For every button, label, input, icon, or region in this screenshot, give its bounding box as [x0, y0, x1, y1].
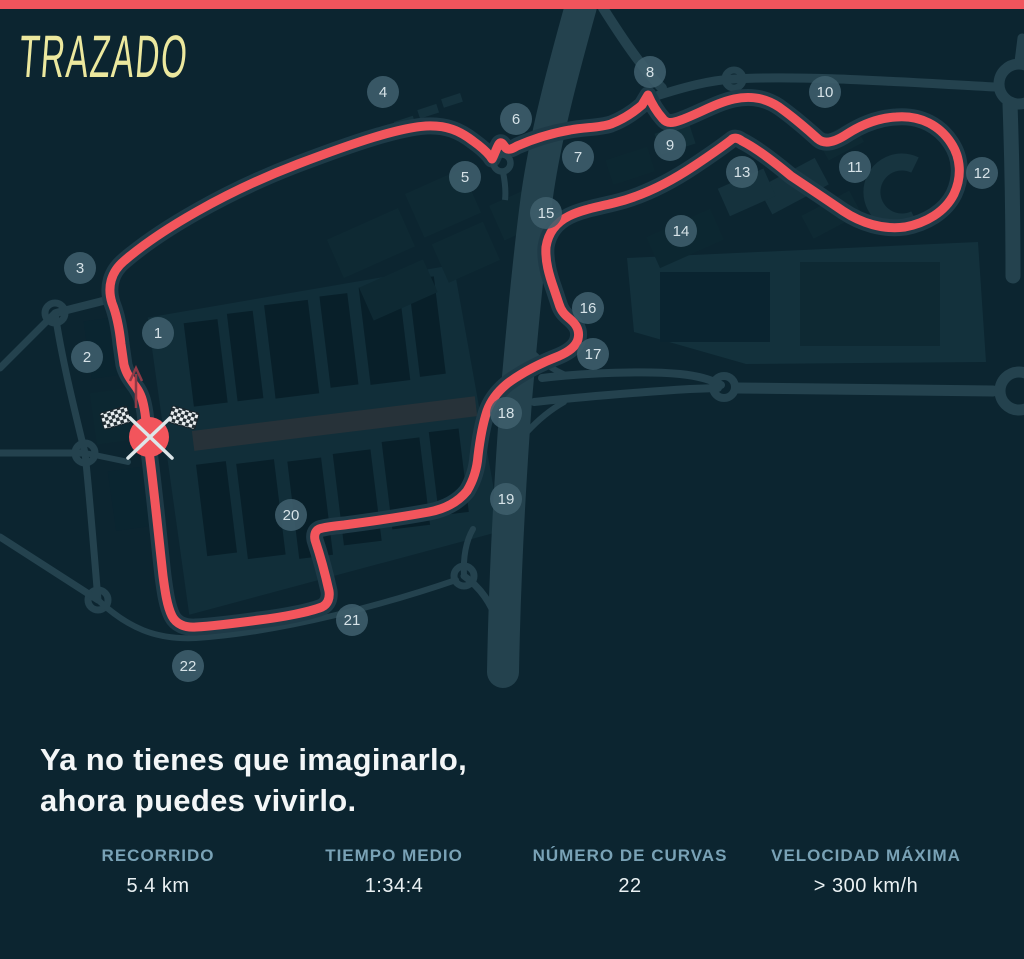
- stat-item: RECORRIDO5.4 km: [40, 846, 276, 898]
- trazado-section: TRAZADO 12345678910111213141516171819202…: [0, 0, 1024, 959]
- top-accent-bar: [0, 0, 1024, 9]
- stat-label: TIEMPO MEDIO: [276, 846, 512, 866]
- stat-value: 1:34:4: [276, 875, 512, 898]
- stat-label: NÚMERO DE CURVAS: [512, 846, 748, 866]
- stat-value: 5.4 km: [40, 875, 276, 898]
- headline-line1: Ya no tienes que imaginarlo,: [40, 740, 467, 781]
- stats-row: RECORRIDO5.4 kmTIEMPO MEDIO1:34:4NÚMERO …: [40, 846, 984, 898]
- stat-label: VELOCIDAD MÁXIMA: [748, 846, 984, 866]
- headline: Ya no tienes que imaginarlo, ahora puede…: [40, 740, 467, 822]
- stat-label: RECORRIDO: [40, 846, 276, 866]
- stat-item: VELOCIDAD MÁXIMA> 300 km/h: [748, 846, 984, 898]
- page-title: TRAZADO: [17, 22, 192, 91]
- stat-value: 22: [512, 875, 748, 898]
- headline-line2: ahora puedes vivirlo.: [40, 781, 467, 822]
- stat-item: TIEMPO MEDIO1:34:4: [276, 846, 512, 898]
- stat-value: > 300 km/h: [748, 875, 984, 898]
- stat-item: NÚMERO DE CURVAS22: [512, 846, 748, 898]
